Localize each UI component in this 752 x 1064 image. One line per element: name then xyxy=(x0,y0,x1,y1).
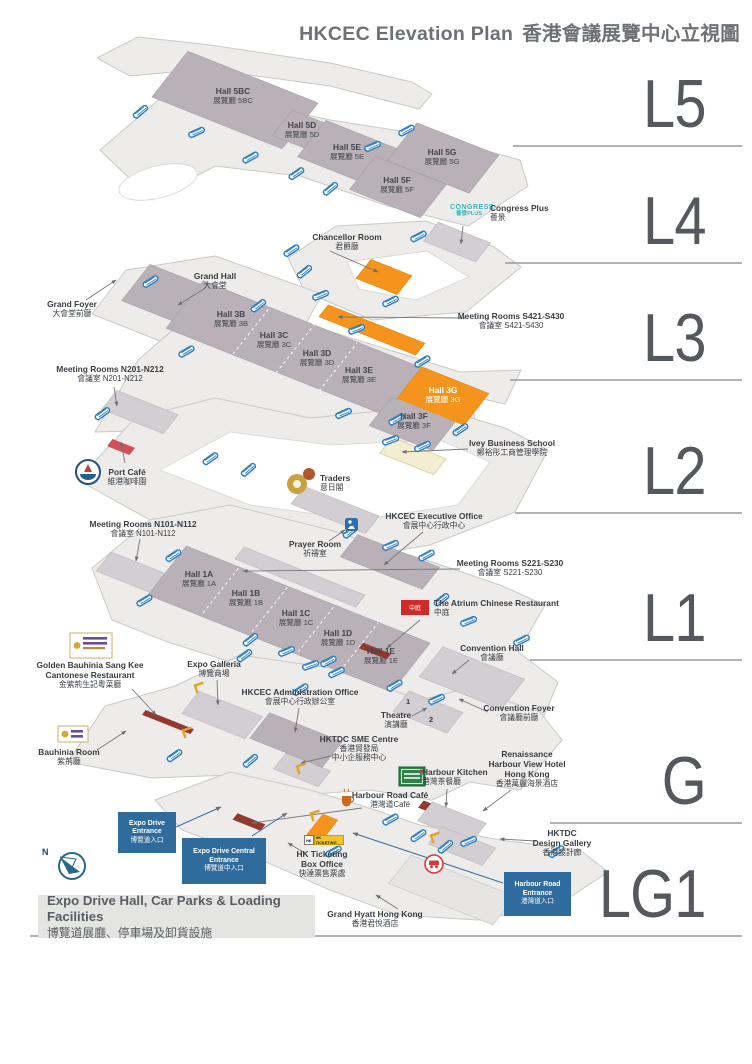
label-hall3f: Hall 3F展覽廳 3F xyxy=(324,411,504,430)
golden-bauhinia-logo xyxy=(70,633,112,658)
label-hall1a: Hall 1A展覽廳 1A xyxy=(109,569,289,588)
label-admin-office: HKCEC Administration Office會展中心行政辦公室 xyxy=(210,687,390,706)
label-hall5d: Hall 5D展覽廳 5D xyxy=(212,120,392,139)
label-hr-cafe: Harbour Road Café港灣道Café xyxy=(300,790,480,809)
label-port-cafe: Port Café維港咖啡園 xyxy=(37,467,217,486)
label-ivey: Ivey Business School鄭裕彤工商管理學院 xyxy=(422,438,602,457)
label-hall1d: Hall 1D展覽廳 1D xyxy=(248,628,428,647)
label-hall5g: Hall 5G展覽廳 5G xyxy=(352,147,532,166)
label-hall5f: Hall 5F展覽廳 5F xyxy=(307,175,487,194)
page-title: HKCEC Elevation Plan香港會議展覽中心立視圖 xyxy=(299,17,740,46)
level-marker-l2: L2 xyxy=(643,437,706,505)
compass-icon xyxy=(59,853,85,879)
label-exec-office: HKCEC Executive Office會展中心行政中心 xyxy=(344,511,524,530)
label-s421: Meeting Rooms S421-S430會議室 S421-S430 xyxy=(421,311,601,330)
level-marker-lg1: LG1 xyxy=(599,860,706,928)
page-title-en: HKCEC Elevation Plan xyxy=(299,23,513,45)
car-pickup-icon xyxy=(425,855,443,873)
label-expo-galleria: Expo Galleria博覽商場 xyxy=(124,659,304,678)
label-n101: Meeting Rooms N101-N112會議室 N101-N112 xyxy=(53,519,233,538)
label-convention-hall: Convention Hall會議廳 xyxy=(402,643,582,662)
label-hall3g: Hall 3G展覽廳 3G xyxy=(353,385,533,404)
level-marker-g: G xyxy=(662,747,706,815)
label-hall1b: Hall 1B展覽廳 1B xyxy=(156,588,336,607)
entrance-box-expo-drive-entrance: Expo Drive Entrance博覽道入口 xyxy=(118,812,176,853)
label-chancellor: Chancellor Room君爵廳 xyxy=(257,232,437,251)
label-grand-foyer: Grand Foyer大會堂前廳 xyxy=(0,299,162,318)
page-title-zh: 香港會議展覽中心立視圖 xyxy=(522,23,740,45)
level-marker-l1: L1 xyxy=(643,584,706,652)
label-hall5bc: Hall 5BC展覽廳 5BC xyxy=(143,86,323,105)
label-hall3c: Hall 3C展覽廳 3C xyxy=(184,330,364,349)
atrium-restaurant-logo: 中庭 xyxy=(401,600,429,615)
compass-north-label: N xyxy=(42,847,49,857)
label-congress-plus: Congress Plus薈景 xyxy=(490,203,549,222)
footer-note-zh: 博覽道展廳、停車場及卸貨設施 xyxy=(47,926,315,941)
label-atrium: The Atrium Chinese Restaurant中庭 xyxy=(434,598,559,617)
hk-ticketing-logo: HK HK TICKETING xyxy=(304,835,344,845)
label-prayer: Prayer Room祈禱室 xyxy=(225,539,405,558)
leader-line xyxy=(483,790,511,811)
label-s221: Meeting Rooms S221-S230會議室 S221-S230 xyxy=(420,558,600,577)
footer-note-en: Expo Drive Hall, Car Parks & Loading Fac… xyxy=(47,893,315,926)
label-grand-hyatt: Grand Hyatt Hong Kong香港君悅酒店 xyxy=(285,909,465,928)
label-bauhinia-room: Bauhinia Room紫荊廳 xyxy=(0,747,159,766)
entrance-box-expo-drive-central: Expo Drive Central Entrance博覽道中入口 xyxy=(182,838,266,884)
congress-plus-logo: CONGRESS 薈景PLUS xyxy=(450,204,488,218)
level-marker-l4: L4 xyxy=(643,187,706,255)
label-convention-foyer: Convention Foyer會議廳前廳 xyxy=(429,703,609,722)
hkcec-elevation-plan: HKCEC Elevation Plan香港會議展覽中心立視圖 L5 L4 L3… xyxy=(0,0,752,1064)
hk-ticketing-logo-text: HK TICKETING xyxy=(314,835,344,845)
label-hall3e: Hall 3E展覽廳 3E xyxy=(269,365,449,384)
label-hall1c: Hall 1C展覽廳 1C xyxy=(206,608,386,627)
bauhinia-room-logo xyxy=(58,726,88,742)
label-design-gallery: HKTDCDesign Gallery香港設計廊 xyxy=(472,828,652,858)
theatre-number-1: 1 xyxy=(406,697,410,706)
label-n201: Meeting Rooms N201-N212會議室 N201-N212 xyxy=(20,364,200,383)
level-marker-l5: L5 xyxy=(643,70,706,138)
level-marker-l3: L3 xyxy=(643,304,706,372)
footer-note: Expo Drive Hall, Car Parks & Loading Fac… xyxy=(38,895,315,938)
label-renaissance: RenaissanceHarbour View HotelHong Kong香港… xyxy=(437,749,617,789)
label-traders: Traders意日閣 xyxy=(320,473,350,492)
entrance-box-harbour-road-entrance: Harbour Road Entrance港灣道入口 xyxy=(504,872,571,916)
label-sme: HKTDC SME Centre香港貿發局中小企服務中心 xyxy=(269,734,449,763)
label-hall3b: Hall 3B展覽廳 3B xyxy=(141,309,321,328)
label-grand-hall: Grand Hall大會堂 xyxy=(125,271,305,290)
